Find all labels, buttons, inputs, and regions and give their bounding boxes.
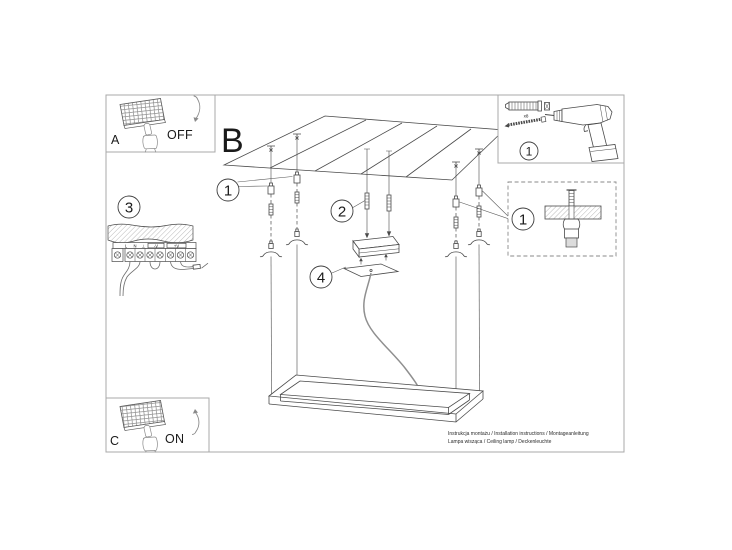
panel-tools: x8 1: [498, 95, 624, 163]
section-b-label: B: [221, 122, 244, 160]
footer-line-2: Lampa wisząca / Ceiling lamp / Deckenleu…: [448, 439, 552, 445]
panel-a-label: A: [111, 133, 120, 147]
panel-c-state: ON: [165, 432, 184, 446]
installation-diagram: A OFF C ON 3: [0, 0, 732, 550]
panel-switch-on: C ON: [106, 398, 209, 452]
callout-detail-digit: 1: [519, 211, 527, 228]
terminal-label-minus-v: -V: [154, 243, 158, 248]
panel-a-state: OFF: [167, 128, 193, 142]
panel-anchor-detail: 1: [508, 182, 616, 256]
callout-3-digit: 3: [125, 199, 133, 216]
anchor-qty-label: x8: [524, 114, 529, 119]
panel-switch-off: A OFF: [106, 95, 215, 152]
footer-line-1: Instrukcja montażu / Installation instru…: [448, 431, 589, 437]
callout-2-digit: 2: [338, 203, 346, 220]
callout-4-digit: 4: [317, 269, 325, 286]
callout-1-digit: 1: [224, 182, 232, 199]
terminal-label-earth: ⊥: [142, 244, 146, 249]
terminal-label-plus-v: +V: [174, 243, 179, 248]
callout-tools-digit: 1: [526, 144, 533, 158]
instruction-sheet: A OFF C ON 3: [0, 0, 732, 550]
terminal-label-n: N: [133, 243, 136, 248]
panel-c-label: C: [110, 434, 119, 448]
